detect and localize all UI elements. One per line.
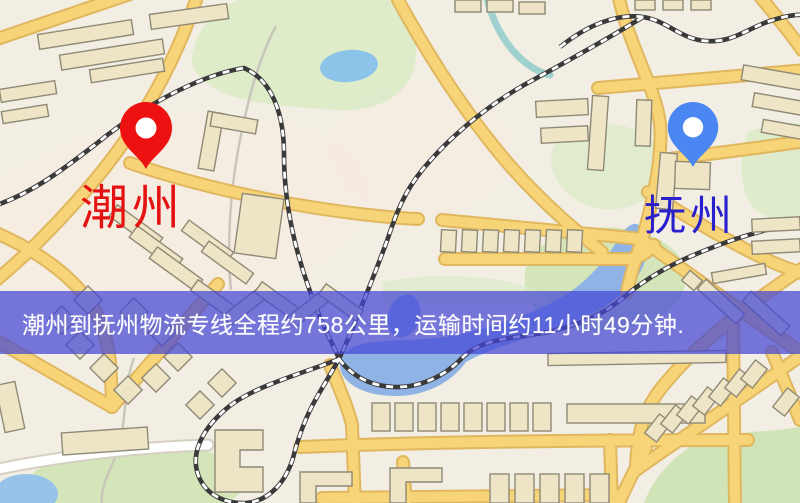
route-info-banner: 潮州到抚州物流专线全程约758公里，运输时间约11小时49分钟. bbox=[0, 291, 800, 354]
map-canvas[interactable] bbox=[0, 0, 800, 503]
route-info-text: 潮州到抚州物流专线全程约758公里，运输时间约11小时49分钟. bbox=[0, 306, 684, 340]
map-route-figure: 潮州 抚州 潮州到抚州物流专线全程约758公里，运输时间约11小时49分钟. bbox=[0, 0, 800, 503]
